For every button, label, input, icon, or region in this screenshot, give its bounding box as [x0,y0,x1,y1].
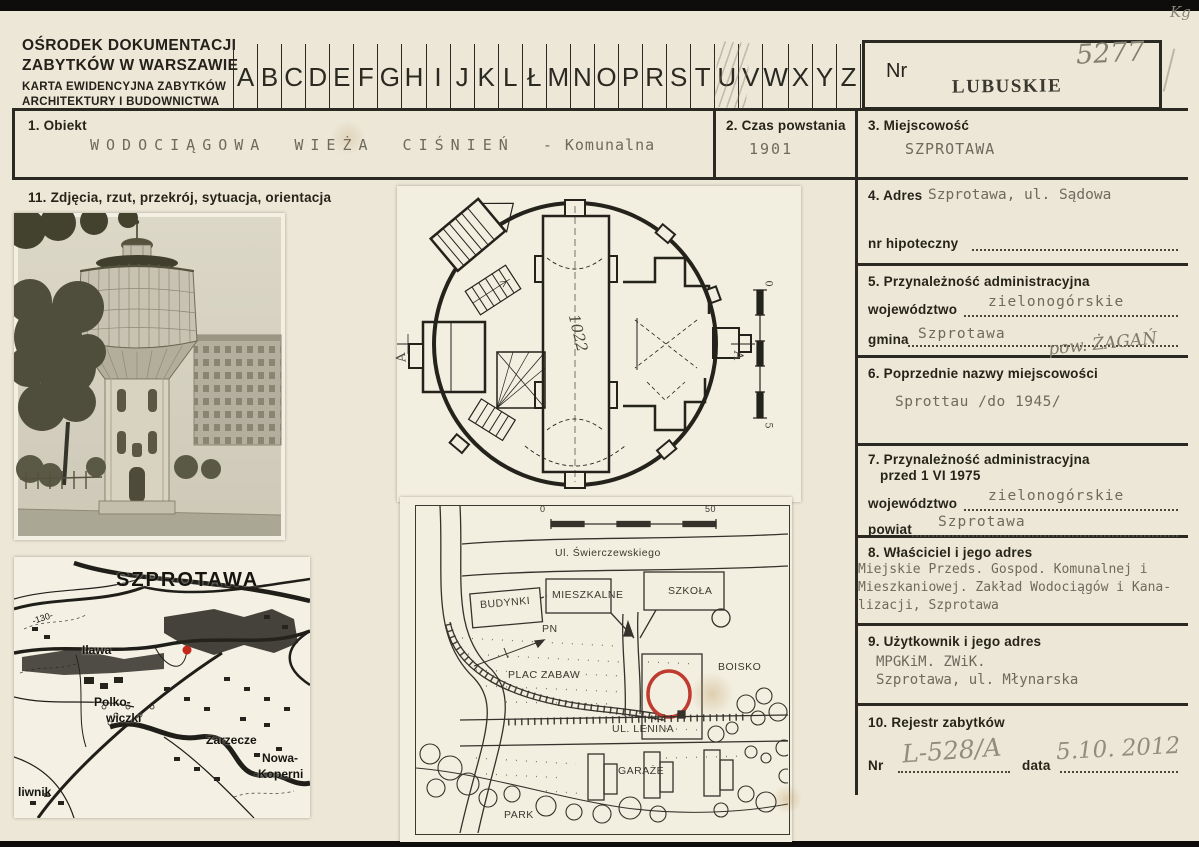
alphabet-letter: L [498,44,522,110]
alphabet-letter: Y [812,44,836,110]
alphabet-letter: E [329,44,353,110]
map-polko-label1: Polko- [94,695,131,709]
nr-value-handwritten: 5277 [1075,36,1145,71]
field-obiekt-label: 1. Obiekt [28,118,87,133]
site-plan-boisko-label: BOISKO [718,661,761,673]
rejestr-nr-dotted [898,770,1010,773]
map-liwnik-label: liwnik [18,785,51,799]
field-nazwy-value: Sprottau /do 1945/ [895,394,1061,410]
wlasciciel-line2: Mieszkaniowej. Zakład Wodociągów i Kana- [858,580,1171,595]
floor-plan-sheet: 1022 A A 0 5 [397,186,801,502]
alphabet-letter: T [690,44,714,110]
alphabet-letter: K [474,44,498,110]
field-wlasciciel-label: 8. Właściciel i jego adres [868,545,1032,560]
sep-5-6 [855,355,1188,358]
alphabet-letter: G [377,44,401,110]
field-rejestr-label: 10. Rejestr zabytków [868,715,1005,730]
divider-main-column [855,108,858,795]
alphabet-letter: I [426,44,450,110]
pencil-scribble [714,41,751,109]
alphabet-letter: S [666,44,690,110]
town-map: SZPROTAWA -130- Iława Polko- wiczki Zarz… [14,557,310,818]
field-admin-label: 5. Przynależność administracyjna [868,274,1090,289]
org-line1: OŚRODEK DOKUMENTACJI [22,36,238,56]
alphabet-letter: W [762,44,788,110]
site-plan-tower-marker [648,671,690,717]
map-nowa-label2: -Koperni [254,767,303,781]
obiekt-title: WODOCIĄGOWA WIEŻA CIŚNIEŃ [90,136,515,154]
paper-stain [690,672,734,716]
sep-6-7 [855,443,1188,446]
left-border [12,108,15,180]
field-miejscowosc-value: SZPROTAWA [905,140,995,158]
field-admin1975-label: 7. Przynależność administracyjna [868,452,1090,467]
site-plan-garaze-label: GARAŻE [618,765,664,777]
divider-obiekt-czas [713,108,716,180]
map-city-label: SZPROTAWA [116,569,259,592]
admin1975-woj-value: zielonogórskie [988,488,1124,504]
admin-woj-label: województwo [868,302,957,317]
field-miejscowosc-label: 3. Miejscowość [868,118,969,133]
floor-plan-section-a-left: A [394,352,410,363]
obiekt-suffix: - Komunalna [543,136,655,154]
field-obiekt-value: WODOCIĄGOWA WIEŻA CIŚNIEŃ - Komunalna [90,136,655,154]
alphabet-letter: F [353,44,377,110]
field-adres-value: Szprotawa, ul. Sądowa [928,187,1111,203]
site-plan-plac-zabaw-label: PLAC ZABAW [508,669,580,681]
nr-label: Nr [886,60,907,83]
alphabet-letter: M [546,44,570,110]
field-adres-label: 4. Adres [868,188,922,203]
uzytkownik-line2: Szprotawa, ul. Młynarska [876,672,1078,688]
rejestr-data-dotted [1060,770,1178,773]
org-line3: KARTA EWIDENCYJNA ZABYTKÓW [22,80,238,95]
region-stamp: LUBUSKIE [952,75,1062,98]
alphabet-letter: B [257,44,281,110]
site-plan-szkola-label: SZKOŁA [668,585,712,597]
hipoteczny-dotted-line [972,248,1178,251]
field-nazwy-label: 6. Poprzednie nazwy miejscowości [868,366,1098,381]
org-line2: ZABYTKÓW W WARSZAWIE [22,56,238,76]
site-plan-lenina-label: UL. LENINA [612,723,674,735]
admin-gmina-label: gmina [868,332,909,347]
site-plan-mieszkalne-label: MIESZKALNE [552,589,624,601]
map-polko-label2: wiczki [106,711,141,725]
floor-plan-scale-5: 5 [763,422,774,428]
wlasciciel-line1: Miejskie Przeds. Gospod. Komunalnej i [858,562,1148,577]
heritage-card-scan: OŚRODEK DOKUMENTACJI ZABYTKÓW W WARSZAWI… [0,0,1199,847]
tower-photo-illustration [14,213,285,540]
field-hipoteczny-label: nr hipoteczny [868,236,958,251]
admin1975-woj-label: województwo [868,496,957,511]
site-plan-pn-label: PN [542,623,558,635]
admin-woj-value: zielonogórskie [988,294,1124,310]
woj-dotted-line [964,314,1178,317]
floor-plan-section-a-right: A [730,351,745,361]
tower-photograph [14,213,285,540]
site-plan-sheet: 0 50 Ul. Świerczewskiego BUDYNKI MIESZKA… [400,497,792,842]
field-czas-value: 1901 [749,140,793,158]
site-plan-scale-0: 0 [540,504,546,514]
field-uzytkownik-label: 9. Użytkownik i jego adres [868,634,1041,649]
wlasciciel-line3: lizacji, Szprotawa [858,598,999,613]
sep-9-10 [855,703,1188,706]
map-location-marker [183,646,192,655]
sep-8-9 [855,623,1188,626]
rejestr-data-label: data [1022,758,1051,773]
sep-4-5 [855,263,1188,266]
map-nowa-label1: Nowa- [262,751,298,765]
woj1975-dotted-line [964,508,1178,511]
field-czas-label: 2. Czas powstania [726,118,846,133]
map-ilawa-label: Iława [82,643,111,657]
alphabet-letter: R [642,44,666,110]
header-rule [12,108,1188,111]
alphabet-strip: ABCDEFGHIJKLŁMNOPRSTUVWXYZ [233,44,861,110]
field-admin1975-label2: przed 1 VI 1975 [880,468,981,483]
site-plan-street-top-label: Ul. Świerczewskiego [555,547,661,559]
alphabet-letter: N [570,44,594,110]
row1-rule [12,177,1188,180]
floor-plan-scale-0: 0 [763,280,774,286]
alphabet-letter: H [401,44,425,110]
site-plan-park-label: PARK [504,809,534,821]
alphabet-letter: C [281,44,305,110]
floor-plan-drawing [397,186,801,502]
alphabet-letter: D [305,44,329,110]
alphabet-letter: J [450,44,474,110]
paper-stain [772,784,802,814]
admin-gmina-value: Szprotawa [918,326,1006,342]
field-zdjecia-label: 11. Zdjęcia, rzut, przekrój, sytuacja, o… [28,190,331,205]
organization-block: OŚRODEK DOKUMENTACJI ZABYTKÓW W WARSZAWI… [22,36,238,110]
admin1975-powiat-label: powiat [868,522,912,537]
alphabet-letter: Ł [522,44,546,110]
powiat-dotted-line [912,534,1178,537]
admin1975-powiat-value: Szprotawa [938,514,1026,530]
site-plan-scale-50: 50 [705,504,716,514]
paper-stain [330,120,366,156]
rejestr-nr-label: Nr [868,758,883,773]
alphabet-letter: X [788,44,812,110]
alphabet-letter: P [618,44,642,110]
alphabet-letter: Z [836,44,861,110]
corner-pencil-mark: Kg [1170,3,1191,21]
alphabet-letter: O [594,44,618,110]
map-zarzecze-label: Zarzecze [206,733,257,747]
uzytkownik-line1: MPGKiM. ZWiK. [876,654,986,670]
alphabet-letter: A [233,44,257,110]
